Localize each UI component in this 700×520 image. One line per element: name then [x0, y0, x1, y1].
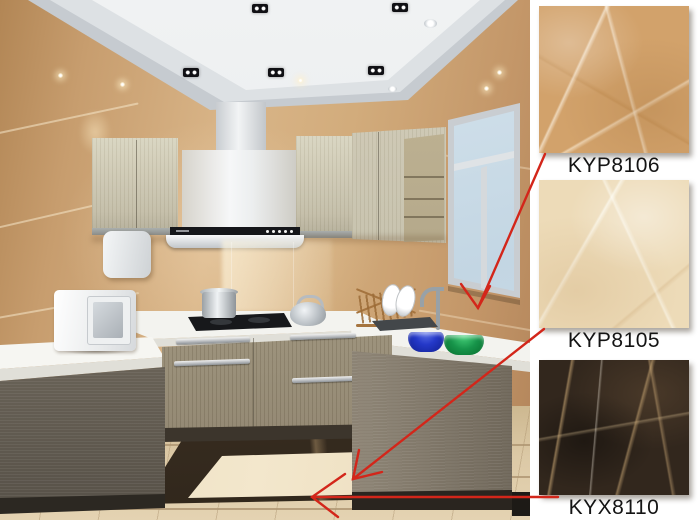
cabinet-door-seam: [378, 132, 379, 240]
cooking-pot: [202, 292, 236, 318]
ceiling-spotlight-icon: [368, 66, 384, 75]
tile-sample-image: [539, 360, 689, 495]
ceiling-spotlight-icon: [183, 68, 199, 77]
shelf-line: [404, 198, 444, 200]
backsplash-grout-line: [293, 242, 294, 312]
shelf-line: [404, 176, 444, 178]
wall-downlight-icon: [298, 78, 303, 83]
burner-icon: [210, 319, 232, 325]
range-hood-brand-mark: [176, 230, 189, 232]
ceiling-spotlight-icon: [268, 68, 284, 77]
range-hood-body: [182, 150, 296, 228]
microwave: [54, 290, 136, 351]
burner-icon: [248, 317, 270, 323]
faucet-stem: [436, 290, 440, 330]
hood-button-icon: [272, 230, 275, 233]
tile-sample-image: [539, 6, 689, 153]
faucet-spout: [420, 287, 444, 307]
kitchen-render: [0, 0, 530, 520]
range-hood-chimney: [216, 102, 266, 152]
tile-sample-image: [539, 180, 689, 328]
green-bowl: [444, 335, 484, 355]
wall-downlight-icon: [497, 70, 502, 75]
wall-downlight-icon: [58, 73, 63, 78]
tile-swatch-kyp8106: KYP8106: [539, 6, 689, 179]
tile-code-label: KYX8110: [539, 495, 689, 520]
hood-button-icon: [278, 230, 281, 233]
microwave-window: [93, 302, 123, 338]
cabinet-door-seam: [253, 338, 254, 432]
wall-baseboard: [512, 492, 530, 516]
upper-cabinet-left: [92, 138, 178, 230]
shelf-line: [404, 216, 444, 218]
upper-cabinet-middle: [296, 136, 352, 233]
ceiling-spotlight-icon: [392, 3, 408, 12]
ceiling-spotlight-icon: [252, 4, 268, 13]
hood-button-icon: [284, 230, 287, 233]
ceiling-downlight-icon: [424, 19, 437, 28]
cabinet-door-seam: [136, 140, 137, 228]
tile-swatch-kyx8110: KYX8110: [539, 360, 689, 520]
teapot-kettle: [290, 302, 326, 326]
tile-product-showcase: KYP8106 KYP8105 KYX8110: [0, 0, 700, 520]
faucet-tip: [420, 298, 423, 306]
tile-swatch-kyp8105: KYP8105: [539, 180, 689, 354]
hood-button-icon: [266, 230, 269, 233]
wall-downlight-icon: [484, 86, 489, 91]
microwave-door: [87, 296, 131, 345]
tile-code-label: KYP8105: [539, 328, 689, 354]
wall-downlight-icon: [120, 82, 125, 87]
hood-button-icon: [290, 230, 293, 233]
blue-bowl: [408, 332, 444, 352]
wall-water-heater: [103, 231, 151, 278]
tile-code-label: KYP8106: [539, 153, 689, 179]
ceiling-downlight-icon: [388, 86, 397, 92]
